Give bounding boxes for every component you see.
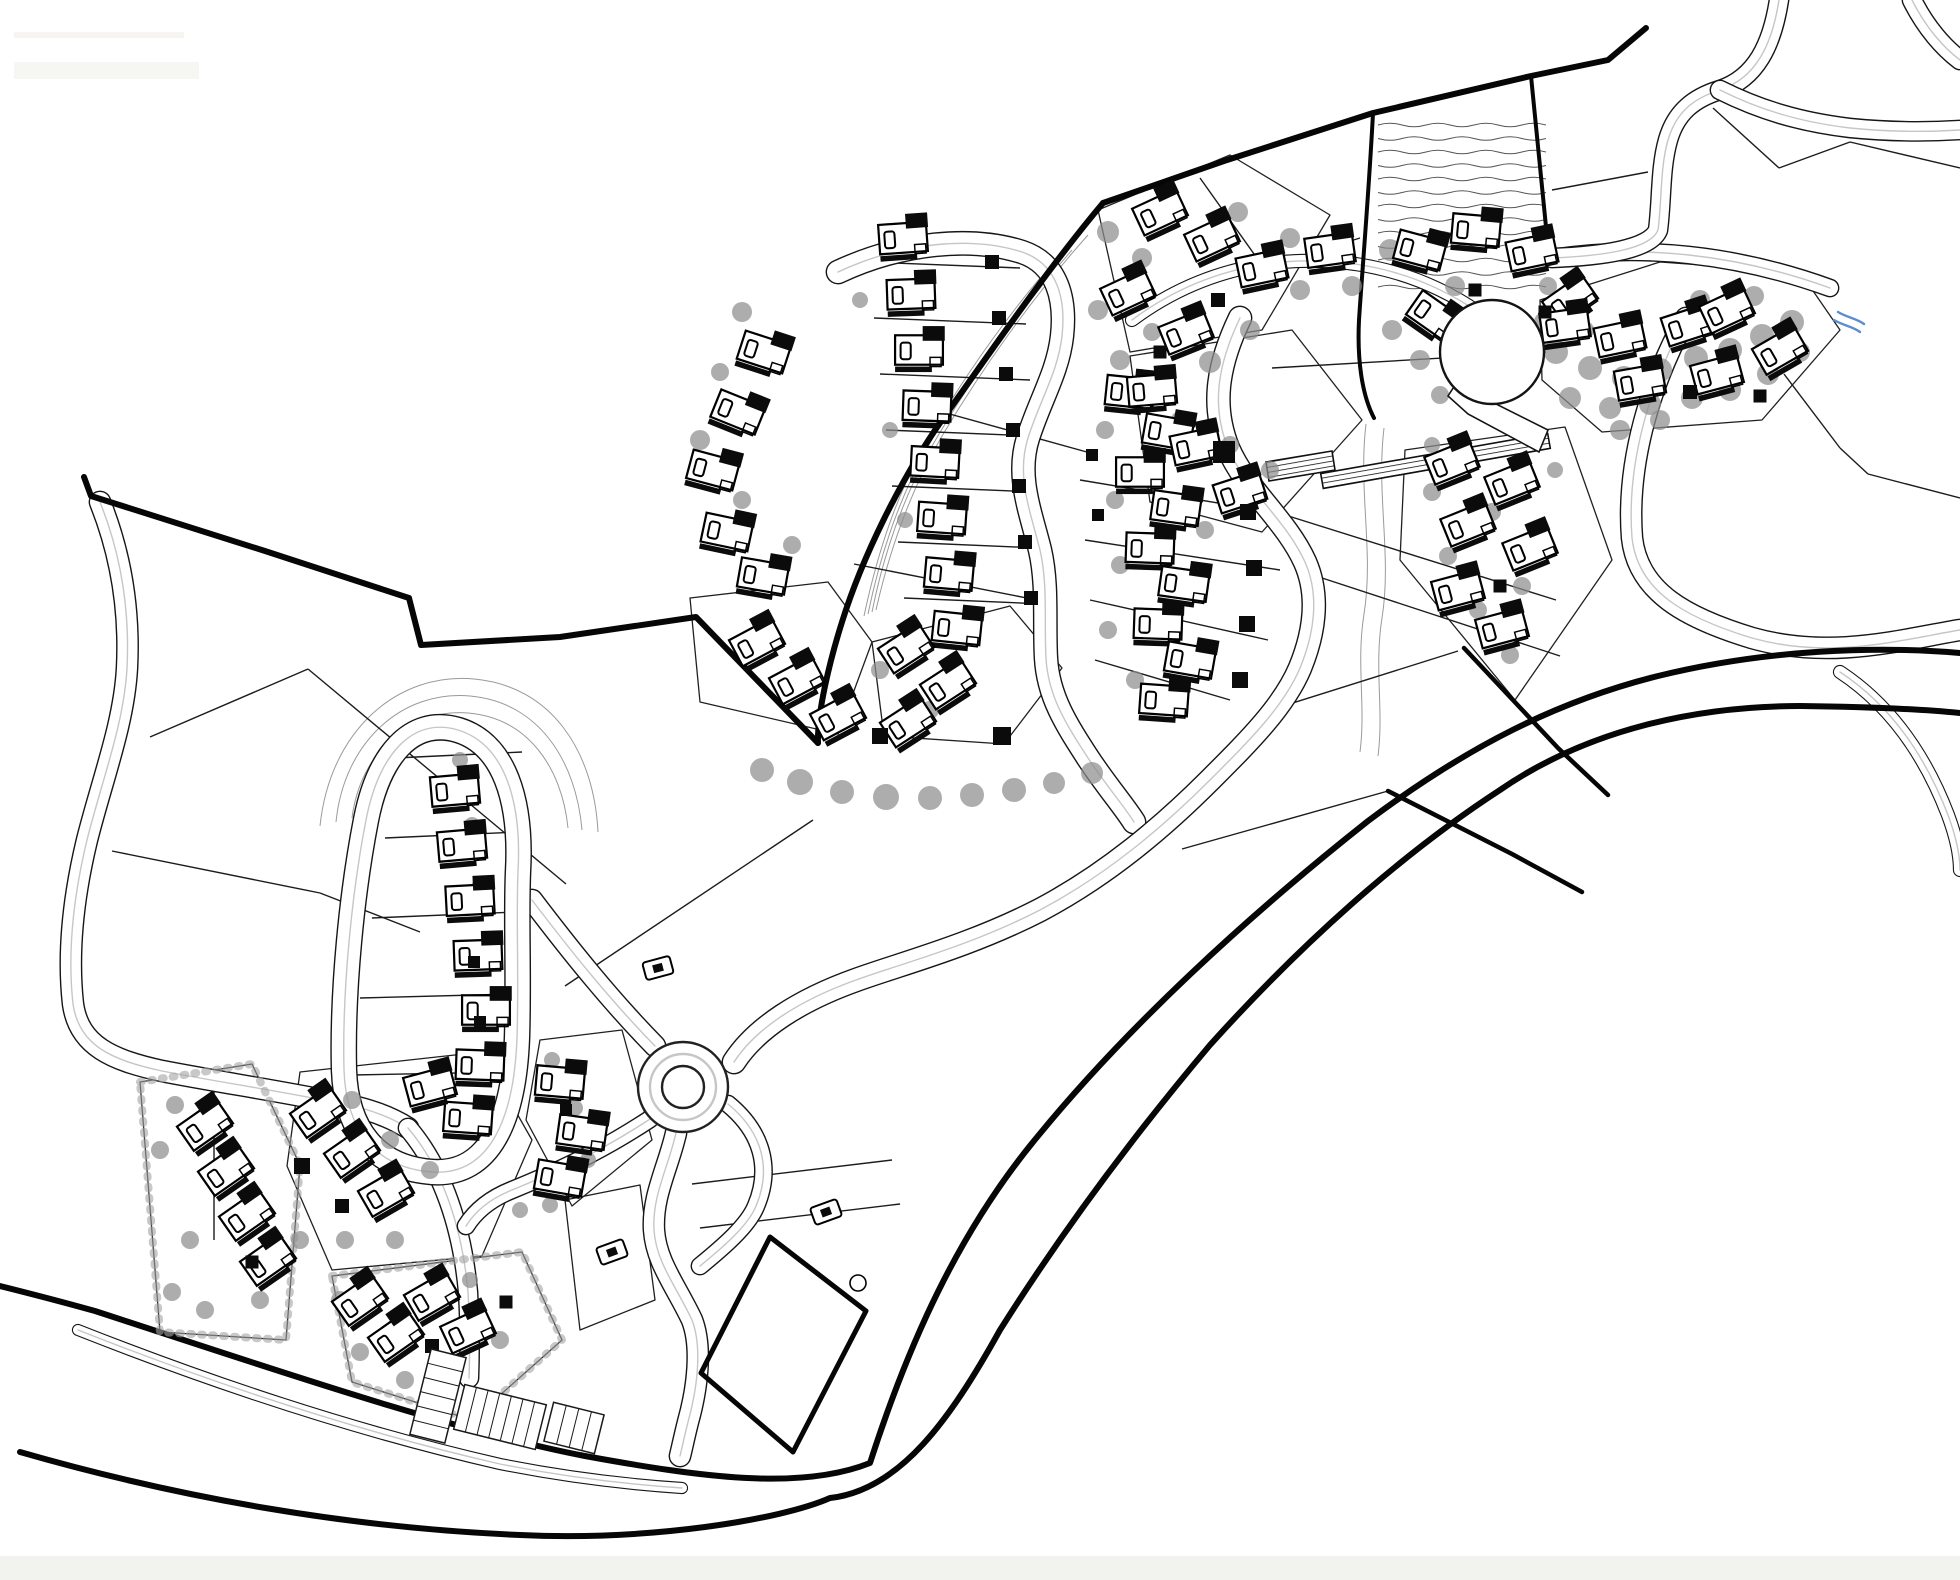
tree-canopy [918,786,942,810]
villa [736,548,793,602]
small-circle-marker [850,1275,866,1291]
garage-block [246,1256,259,1269]
tree-canopy [1578,356,1602,380]
tree-canopy [1096,421,1114,439]
villa [684,441,744,498]
tree-canopy [251,1291,269,1309]
tree-canopy [733,491,751,509]
villa [699,504,757,559]
villa [534,1056,588,1106]
garage-block [560,1104,572,1116]
tree-canopy [1290,280,1310,300]
villa [725,609,790,673]
parcels-line-16 [1779,142,1850,168]
tree-canopy [1143,323,1161,341]
roads-walk-16 [1840,672,1960,870]
tree-canopy [1559,387,1581,409]
garage-block [294,1158,310,1174]
tree-canopy [1199,351,1221,373]
parcels-line-2 [112,851,320,893]
garage-block [1154,346,1167,359]
parcels-line-21 [692,1160,892,1184]
tree-canopy [1043,772,1065,794]
tree-canopy [1599,397,1621,419]
villa [886,269,937,317]
tree-canopy [897,512,913,528]
garage-block [1211,293,1225,307]
tree-canopy [732,302,752,322]
tree-canopy [1431,386,1449,404]
tree-canopy [1099,621,1117,639]
tree-canopy [166,1096,184,1114]
parcels-line-20 [1868,474,1960,498]
background [0,32,1960,1580]
stream-mark [1838,312,1864,324]
tree-canopy [512,1202,528,1218]
tree-canopy [1424,437,1440,453]
circular-pond [1440,300,1544,404]
parcels-line-0 [150,669,308,737]
garage-block [1539,306,1552,319]
tree-canopy [1261,461,1279,479]
villa [1125,523,1176,571]
garage-block [1494,580,1507,593]
villa [429,764,483,814]
villa [1504,223,1562,278]
villa [445,875,497,924]
tree-canopy [336,1231,354,1249]
tree-canopy [882,422,898,438]
villa [443,1092,496,1141]
villa [1437,492,1500,553]
tree-canopy [871,661,889,679]
tree-canopy [381,1131,399,1149]
villa [453,930,504,978]
tree-canopy [960,783,984,807]
villa [923,548,977,598]
tree-canopy [1110,350,1130,370]
parcels-line-4 [565,820,813,986]
tree-canopy [1445,276,1465,296]
faint-watermark-line [14,32,184,38]
tree-canopy [462,1272,478,1288]
tree-canopy [1097,221,1119,243]
tree-canopy [1410,350,1430,370]
tree-canopy [386,1231,404,1249]
parcels-line-14 [1552,172,1648,190]
villa [931,602,985,653]
villa [462,986,512,1032]
tree-canopy [181,1231,199,1249]
east-coast-road [1631,318,1960,648]
parcels-line-3 [320,893,420,932]
villa [708,381,771,442]
villa [1592,309,1650,364]
parcels-line-9 [1182,791,1388,849]
villa [436,819,490,869]
gate-house [642,956,674,981]
parcels-line-19 [1840,448,1868,474]
roads-walk-16 [1840,672,1960,870]
tree-canopy [1228,202,1248,222]
garage-block [992,311,1006,325]
villa [1499,516,1562,577]
villa [734,322,795,381]
villa [436,1297,500,1360]
tree-canopy [343,1091,361,1109]
faint-watermark-block [14,62,199,79]
garage-block [1012,479,1026,493]
garage-block [1469,284,1482,297]
garage-block [500,1296,513,1309]
villa [910,437,962,486]
garage-block [1213,441,1235,463]
villa-row-central-west [684,322,796,602]
tree-canopy [1240,320,1260,340]
roundabout [662,1066,704,1108]
tree-canopy [1610,420,1630,440]
villa [1450,204,1504,254]
parking-row [454,1385,547,1450]
garage-block [1240,504,1256,520]
roads-road-12 [1720,90,1960,131]
tree-canopy [711,363,729,381]
tree-canopy [421,1161,439,1179]
villa [1133,599,1184,647]
tree-canopy [873,784,899,810]
villa-group-southwest [172,1056,611,1368]
garage-block [1239,616,1255,632]
garage-block [985,255,999,269]
villa [917,492,970,541]
parcels-line-17 [1850,142,1960,168]
tree-canopy [196,1301,214,1319]
garage-block [1683,385,1697,399]
tree-canopy [1513,577,1531,595]
tree-canopy [750,758,774,782]
villa-row-central-mid [1104,366,1220,724]
tree-canopy [291,1231,309,1249]
site-plan-page [0,0,1960,1580]
tree-canopy [1002,778,1026,802]
tree-canopy [351,1343,369,1361]
garage-block [1232,672,1248,688]
northeast-road [1552,0,1779,258]
garage-block [999,367,1013,381]
garage-block [335,1199,349,1213]
garage-block [1092,509,1104,521]
parcels-line-22 [700,1204,900,1228]
garage-block [1086,449,1098,461]
garage-block [1018,535,1032,549]
tree-canopy [163,1283,181,1301]
villa [1116,448,1166,494]
villa-group-trapezoid [1421,430,1562,655]
parking-row [544,1402,604,1453]
roads-road-7 [532,900,655,1046]
parcels-line-29 [904,598,1044,604]
tree-canopy [1081,762,1103,784]
villa [1139,674,1192,723]
villa [1234,239,1292,294]
tree-canopy [151,1141,169,1159]
tree-canopy [852,292,868,308]
tree-canopy [1650,410,1670,430]
boundaries-bold-9 [1388,791,1582,892]
gate-house [596,1239,628,1265]
roads [71,0,1960,1488]
garage-block [872,728,888,744]
tree-canopy [396,1371,414,1389]
tree-canopy [1382,320,1402,340]
coastal-corridor-upper [0,650,1960,1479]
tree-canopy [1088,300,1108,320]
gate-house [810,1199,842,1225]
garage-block [993,727,1011,745]
garage-block [1024,591,1038,605]
bottom-edge-band [0,1556,1960,1580]
tree-canopy [690,430,710,450]
garage-block [474,1016,486,1028]
villa [455,1040,506,1088]
tree-canopy [1547,462,1563,478]
villa [895,326,945,372]
roads-walk-16 [1840,672,1960,870]
beach-parcel-diamond [701,1237,866,1452]
garage-block [1006,423,1020,437]
tree-canopy [787,769,813,795]
villa [902,381,953,429]
garage-block [1754,390,1767,403]
garage-block [468,956,480,968]
garage-block [1246,560,1262,576]
tree-canopy [783,536,801,554]
tree-canopy [830,780,854,804]
tree-canopy [1342,276,1362,296]
site-plan-canvas [0,0,1960,1580]
